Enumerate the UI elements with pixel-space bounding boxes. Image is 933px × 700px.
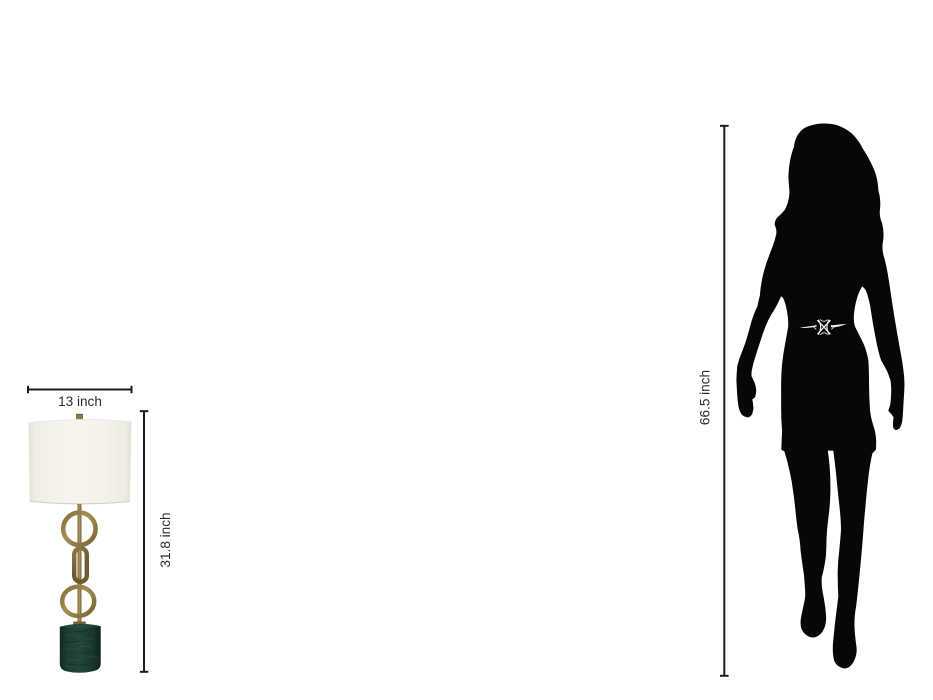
svg-text:31.8 inch: 31.8 inch [158, 512, 173, 567]
svg-text:13 inch: 13 inch [58, 394, 102, 409]
svg-text:66.5 inch: 66.5 inch [697, 370, 712, 425]
